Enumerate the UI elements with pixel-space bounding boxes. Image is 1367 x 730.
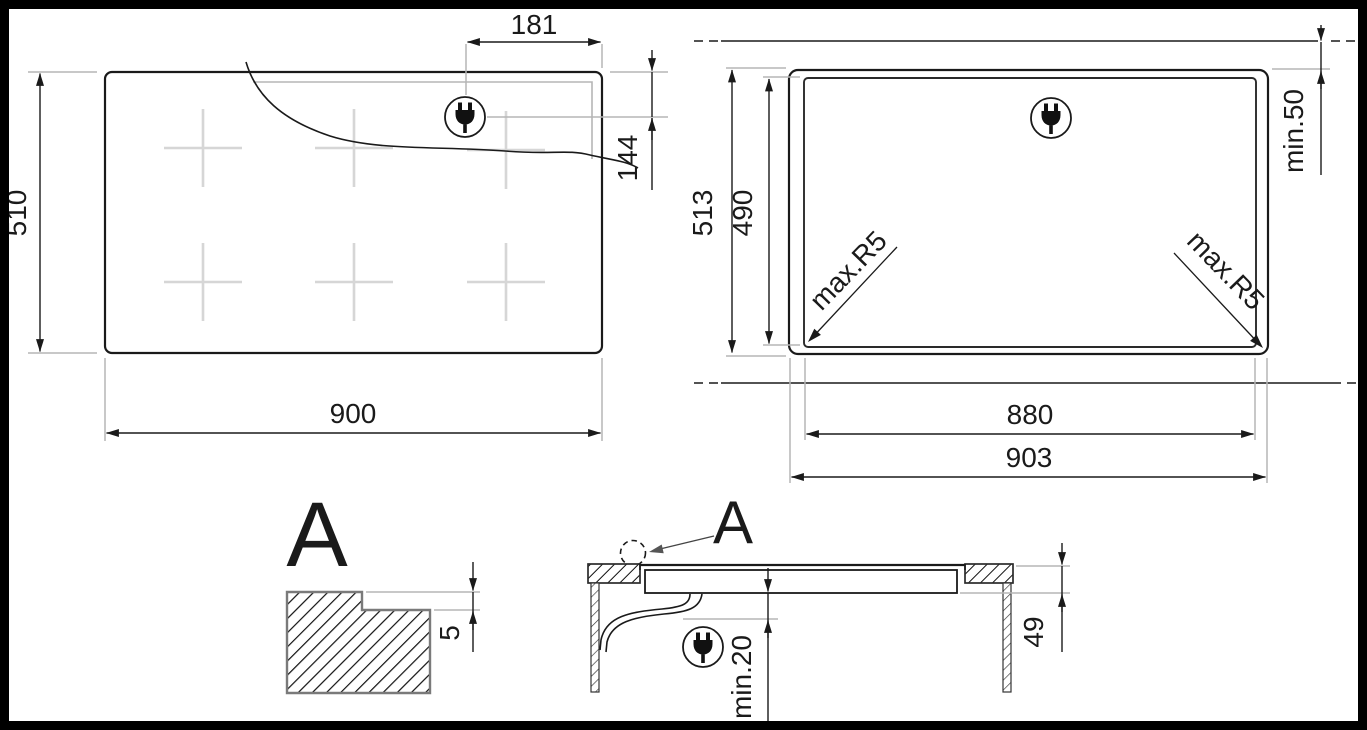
dim-depth-49: 49 xyxy=(960,543,1070,652)
detail-callout-circle xyxy=(621,541,646,566)
cabinet-panel-right xyxy=(1003,583,1011,692)
svg-text:880: 880 xyxy=(1007,399,1054,430)
dim-width-900: 900 xyxy=(105,358,602,441)
svg-text:490: 490 xyxy=(727,190,758,237)
svg-text:49: 49 xyxy=(1018,616,1049,647)
burner-crosses xyxy=(164,109,545,321)
detail-callout-leader xyxy=(649,536,714,553)
svg-text:min.50: min.50 xyxy=(1278,89,1309,173)
worktop-section-right xyxy=(965,564,1013,583)
cutout-view: 513 490 min.50 max.R5 max.R5 xyxy=(687,25,1359,483)
svg-text:903: 903 xyxy=(1006,442,1053,473)
worktop-section-left xyxy=(588,564,640,583)
svg-text:181: 181 xyxy=(511,9,558,40)
dim-min-distance-50: min.50 xyxy=(1272,25,1330,175)
svg-text:900: 900 xyxy=(330,398,377,429)
svg-text:144: 144 xyxy=(612,135,643,182)
hob-body-section xyxy=(645,570,957,593)
worktop-rebate-section xyxy=(287,592,430,693)
break-line-curve xyxy=(246,62,638,168)
diagram-svg: 510 900 181 144 xyxy=(0,0,1367,730)
installation-diagram: 510 900 181 144 xyxy=(0,0,1367,730)
power-plug-icon xyxy=(1031,98,1071,138)
svg-text:min.20: min.20 xyxy=(726,635,757,719)
power-plug-icon xyxy=(445,97,485,137)
plan-view: 510 900 181 144 xyxy=(1,9,668,441)
cutout-inner-rect xyxy=(804,78,1256,347)
section-view: A min.20 xyxy=(588,489,1070,729)
section-callout-label: A xyxy=(713,489,753,556)
detail-a-view: A 5 xyxy=(286,484,480,693)
dim-inner-width-880: 880 xyxy=(805,358,1255,440)
svg-text:513: 513 xyxy=(687,190,718,237)
svg-text:5: 5 xyxy=(434,625,465,641)
detail-title: A xyxy=(286,484,348,586)
dim-height-510: 510 xyxy=(1,72,97,353)
cabinet-panel-left xyxy=(591,583,599,692)
power-plug-icon xyxy=(683,627,723,667)
